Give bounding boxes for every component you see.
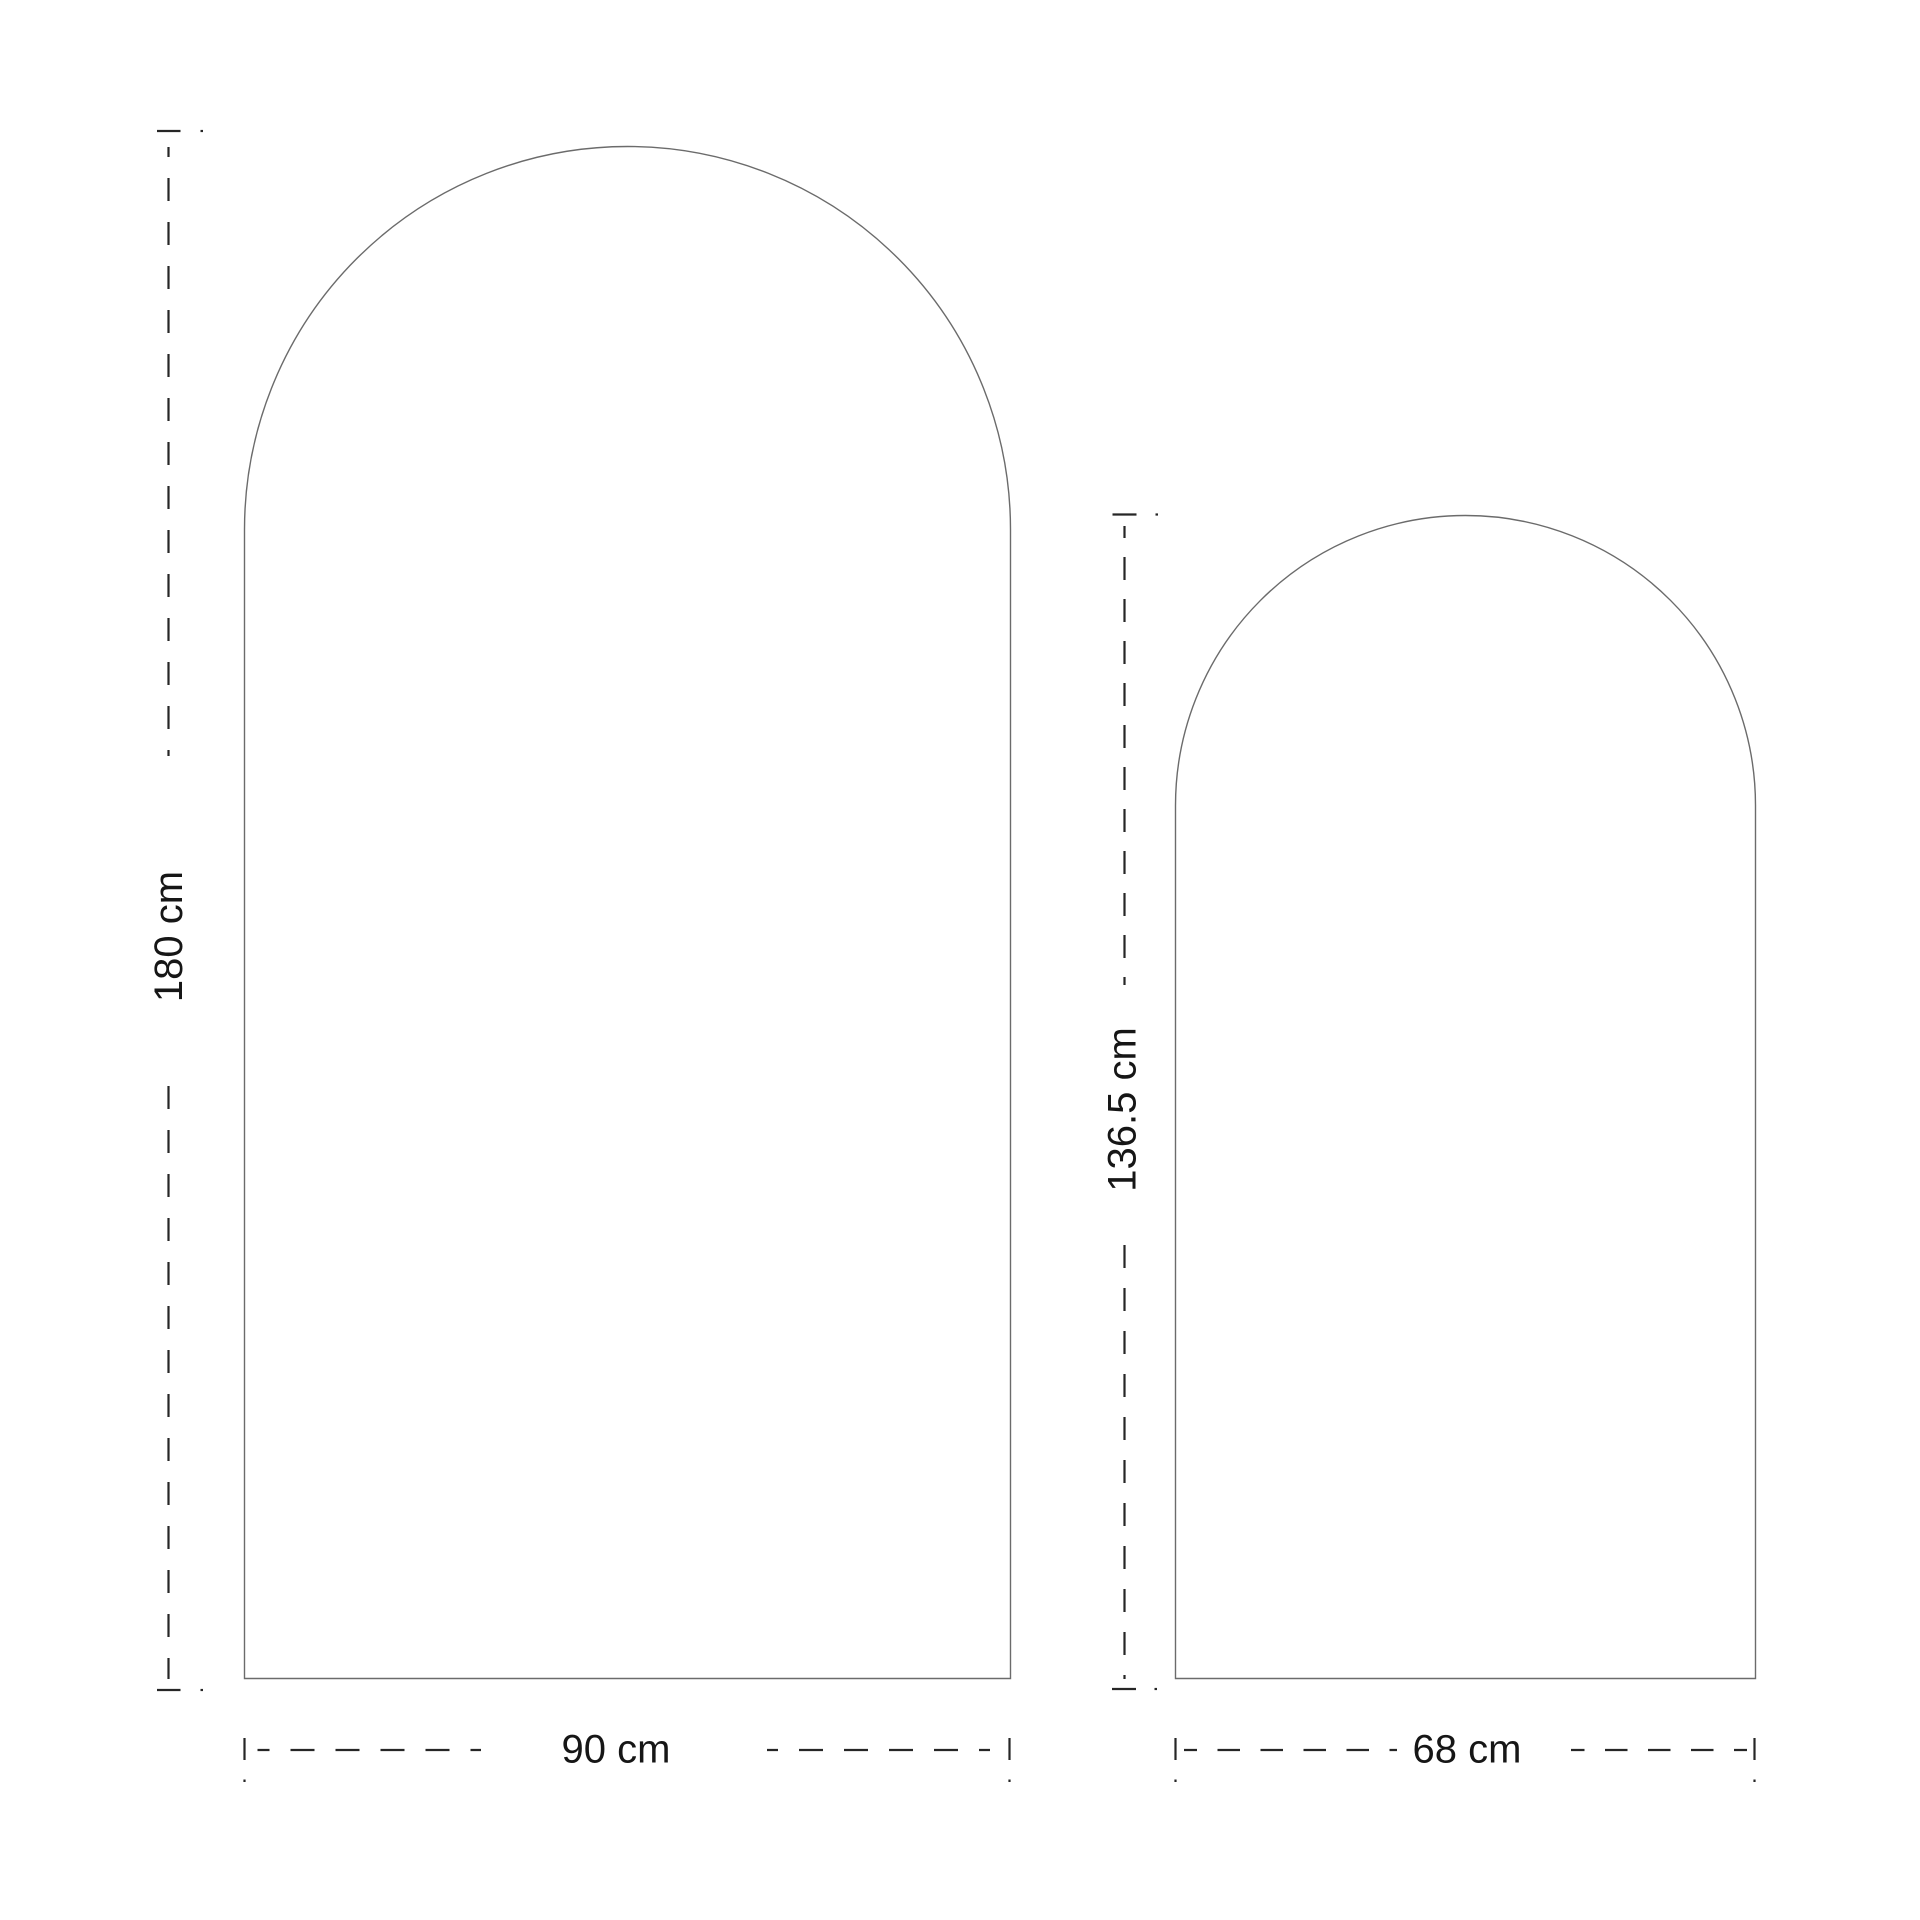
- svg-text:136.5 cm: 136.5 cm: [1101, 1027, 1145, 1192]
- svg-text:90 cm: 90 cm: [562, 1728, 671, 1772]
- svg-text:68 cm: 68 cm: [1413, 1728, 1522, 1772]
- svg-text:180 cm: 180 cm: [147, 871, 191, 1002]
